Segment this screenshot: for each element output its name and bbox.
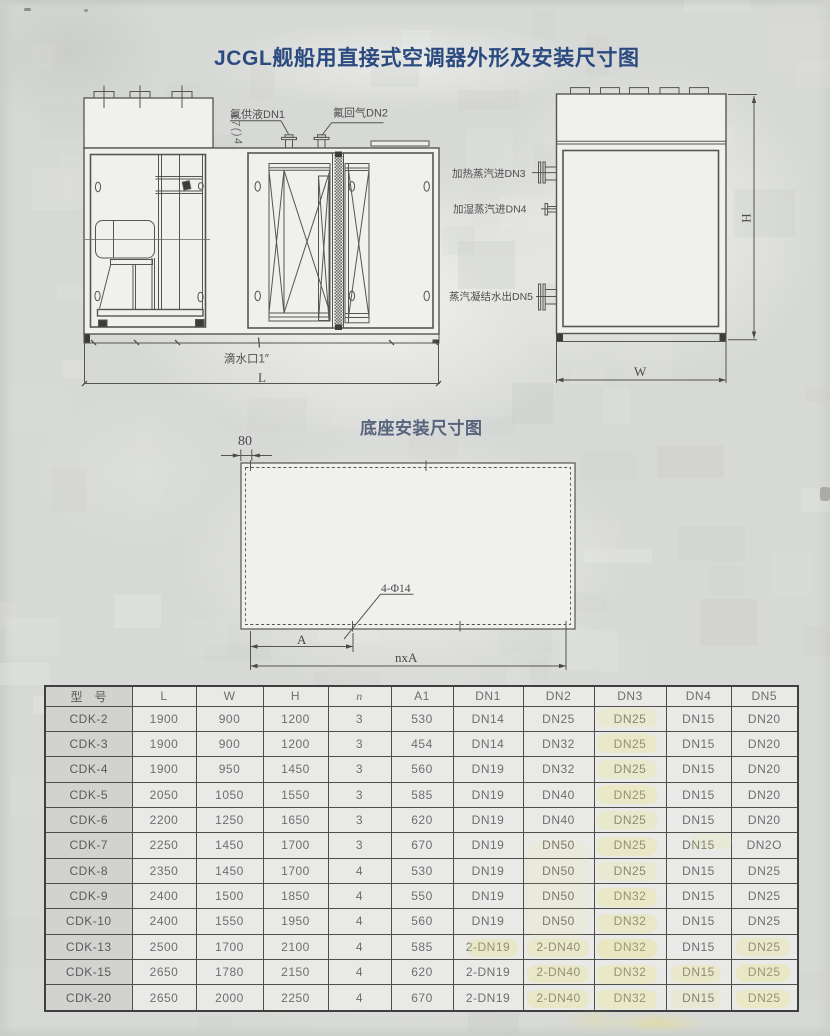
svg-text:80: 80 <box>238 434 252 449</box>
svg-text:蒸汽凝结水出DN5: 蒸汽凝结水出DN5 <box>449 290 533 303</box>
svg-text:加热蒸汽进DN3: 加热蒸汽进DN3 <box>452 167 526 180</box>
svg-text:氟回气DN2: 氟回气DN2 <box>333 106 388 120</box>
svg-text:H: H <box>739 213 754 222</box>
svg-text:滴水口1″: 滴水口1″ <box>224 352 269 366</box>
svg-text:加湿蒸汽进DN4: 加湿蒸汽进DN4 <box>453 203 527 216</box>
svg-text:4-Φ14: 4-Φ14 <box>381 583 411 595</box>
svg-text:W: W <box>634 364 647 379</box>
svg-text:A: A <box>297 632 307 647</box>
svg-text:nxA: nxA <box>395 650 418 665</box>
svg-text:L: L <box>258 370 266 385</box>
